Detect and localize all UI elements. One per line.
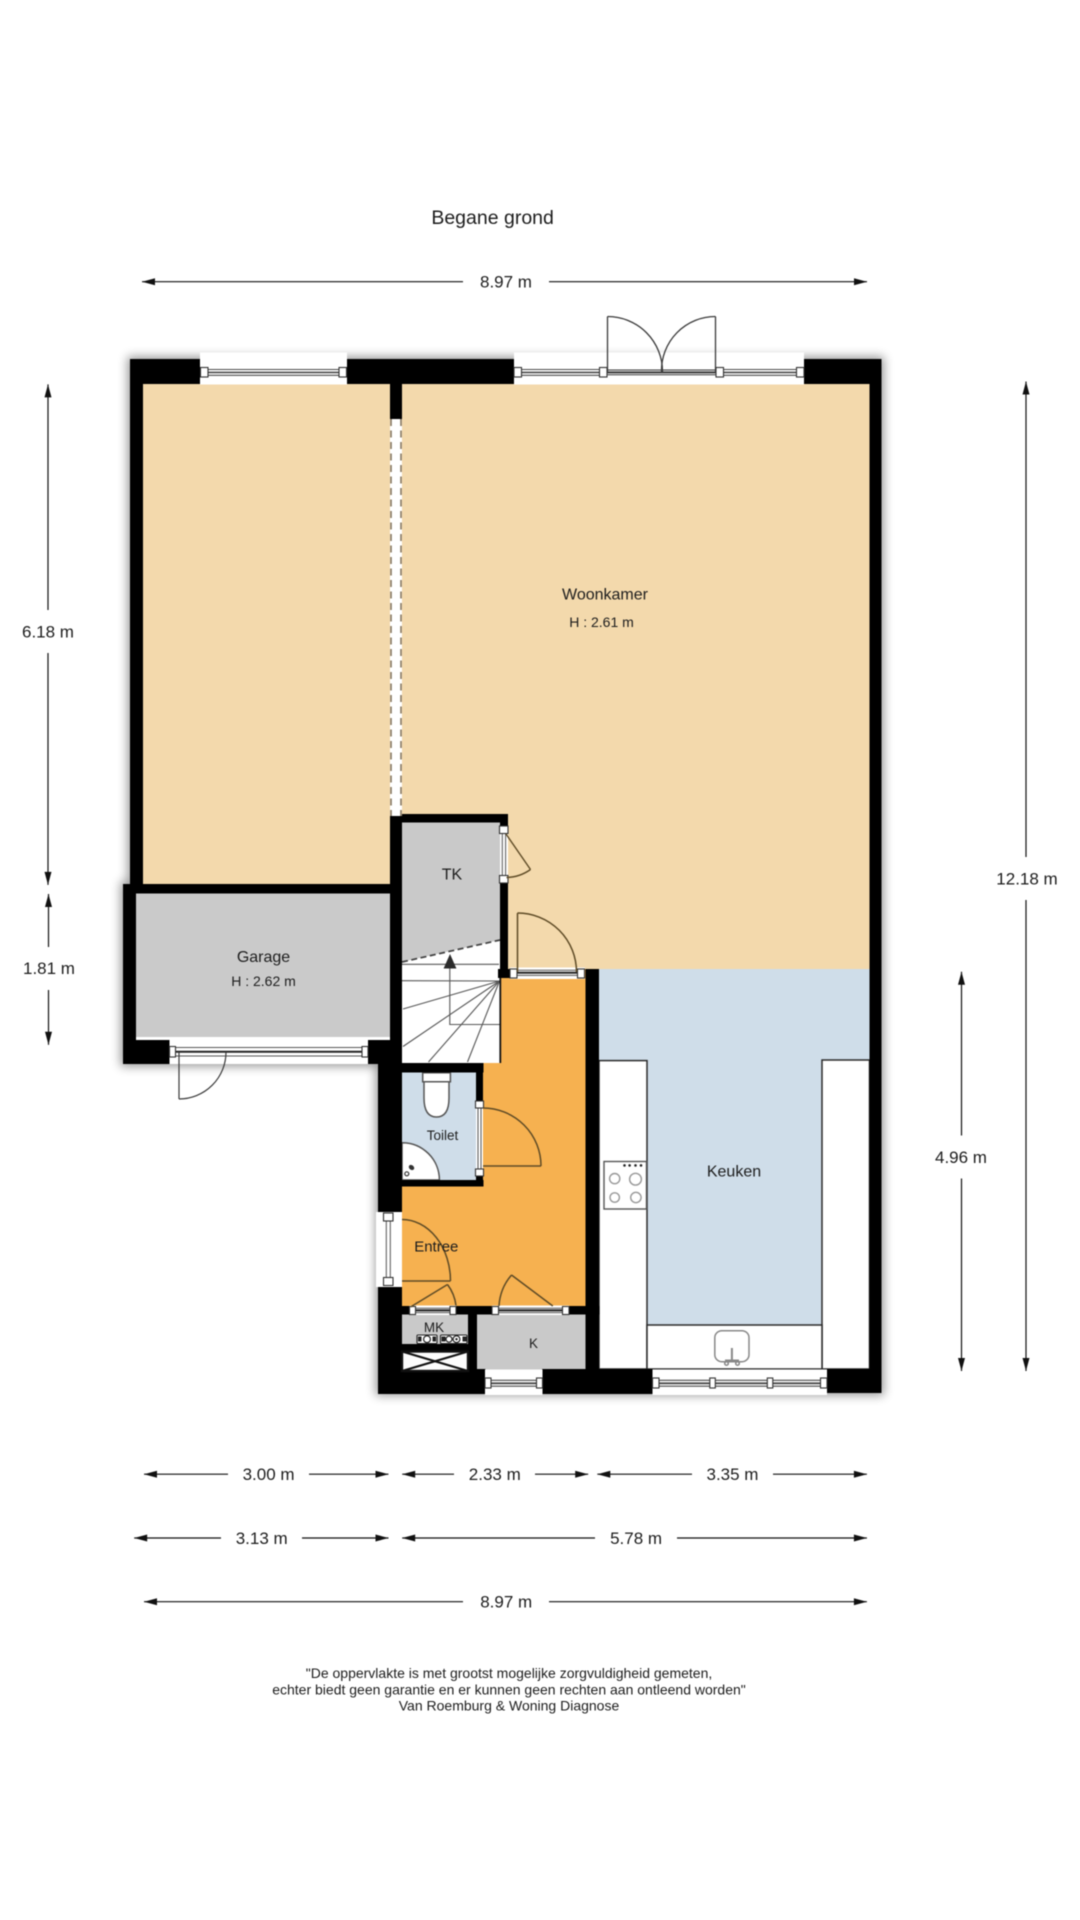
svg-text:3.35 m: 3.35 m — [707, 1465, 759, 1484]
svg-text:6.18 m: 6.18 m — [22, 623, 74, 642]
svg-text:Garage: Garage — [237, 949, 290, 966]
svg-text:Van Roemburg & Woning Diagnose: Van Roemburg & Woning Diagnose — [399, 1698, 620, 1714]
svg-text:TK: TK — [442, 867, 463, 884]
svg-text:Entree: Entree — [414, 1239, 458, 1256]
svg-text:8.97 m: 8.97 m — [480, 1593, 532, 1612]
svg-text:K: K — [529, 1336, 538, 1351]
svg-text:8.97 m: 8.97 m — [480, 273, 532, 292]
svg-text:Keuken: Keuken — [707, 1164, 761, 1181]
svg-text:Begane grond: Begane grond — [431, 207, 554, 229]
svg-text:5.78 m: 5.78 m — [610, 1529, 662, 1548]
svg-text:H : 2.61 m: H : 2.61 m — [569, 614, 634, 630]
svg-text:3.13 m: 3.13 m — [236, 1529, 288, 1548]
svg-text:4.96 m: 4.96 m — [935, 1148, 987, 1167]
svg-text:MK: MK — [424, 1320, 444, 1335]
svg-text:Toilet: Toilet — [427, 1128, 459, 1143]
svg-text:12.18 m: 12.18 m — [996, 870, 1057, 889]
svg-text:1.81 m: 1.81 m — [23, 959, 75, 978]
svg-text:3.00 m: 3.00 m — [243, 1465, 295, 1484]
svg-text:H : 2.62 m: H : 2.62 m — [231, 973, 296, 989]
svg-text:echter biedt geen garantie en: echter biedt geen garantie en er kunnen … — [272, 1682, 746, 1698]
svg-text:2.33 m: 2.33 m — [469, 1465, 521, 1484]
svg-text:Woonkamer: Woonkamer — [562, 587, 649, 604]
svg-text:"De oppervlakte is met grootst: "De oppervlakte is met grootst mogelijke… — [306, 1665, 713, 1681]
